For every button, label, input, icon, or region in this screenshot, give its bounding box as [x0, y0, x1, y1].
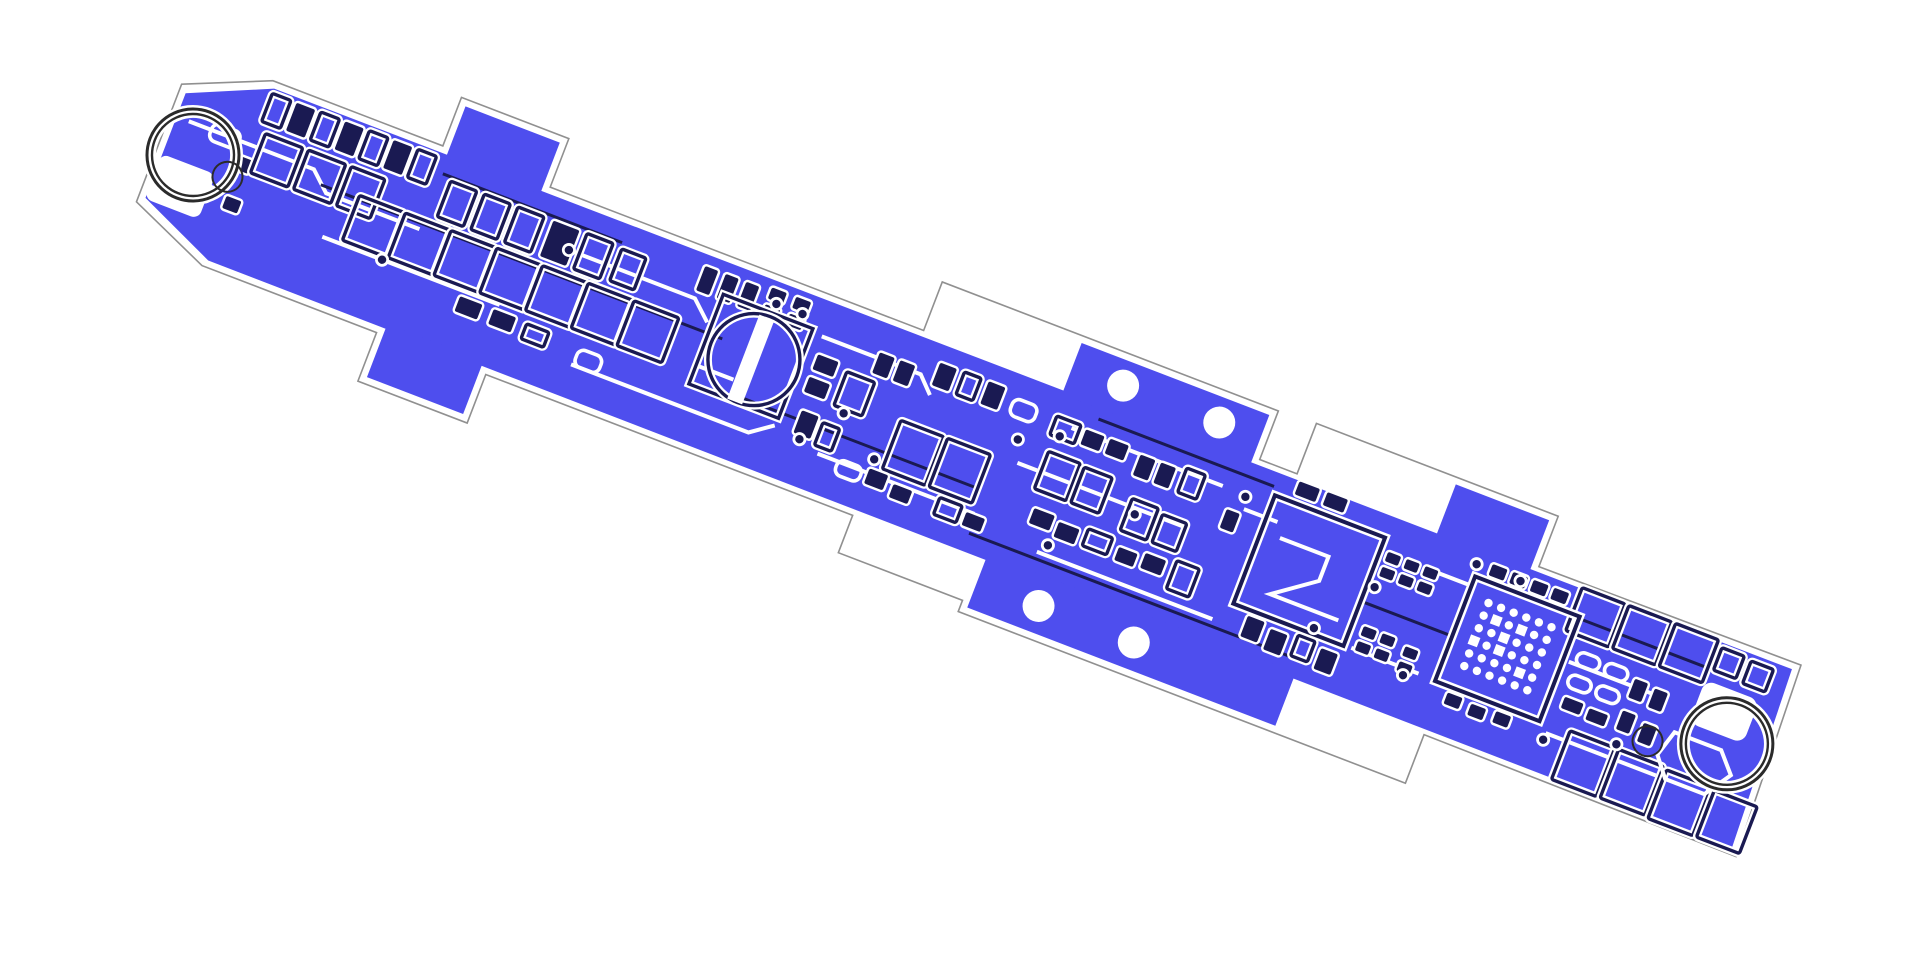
pcb-board-svg [0, 0, 1920, 960]
pcb-render-viewport [0, 0, 1920, 960]
pcb-board-group [96, 0, 1829, 904]
